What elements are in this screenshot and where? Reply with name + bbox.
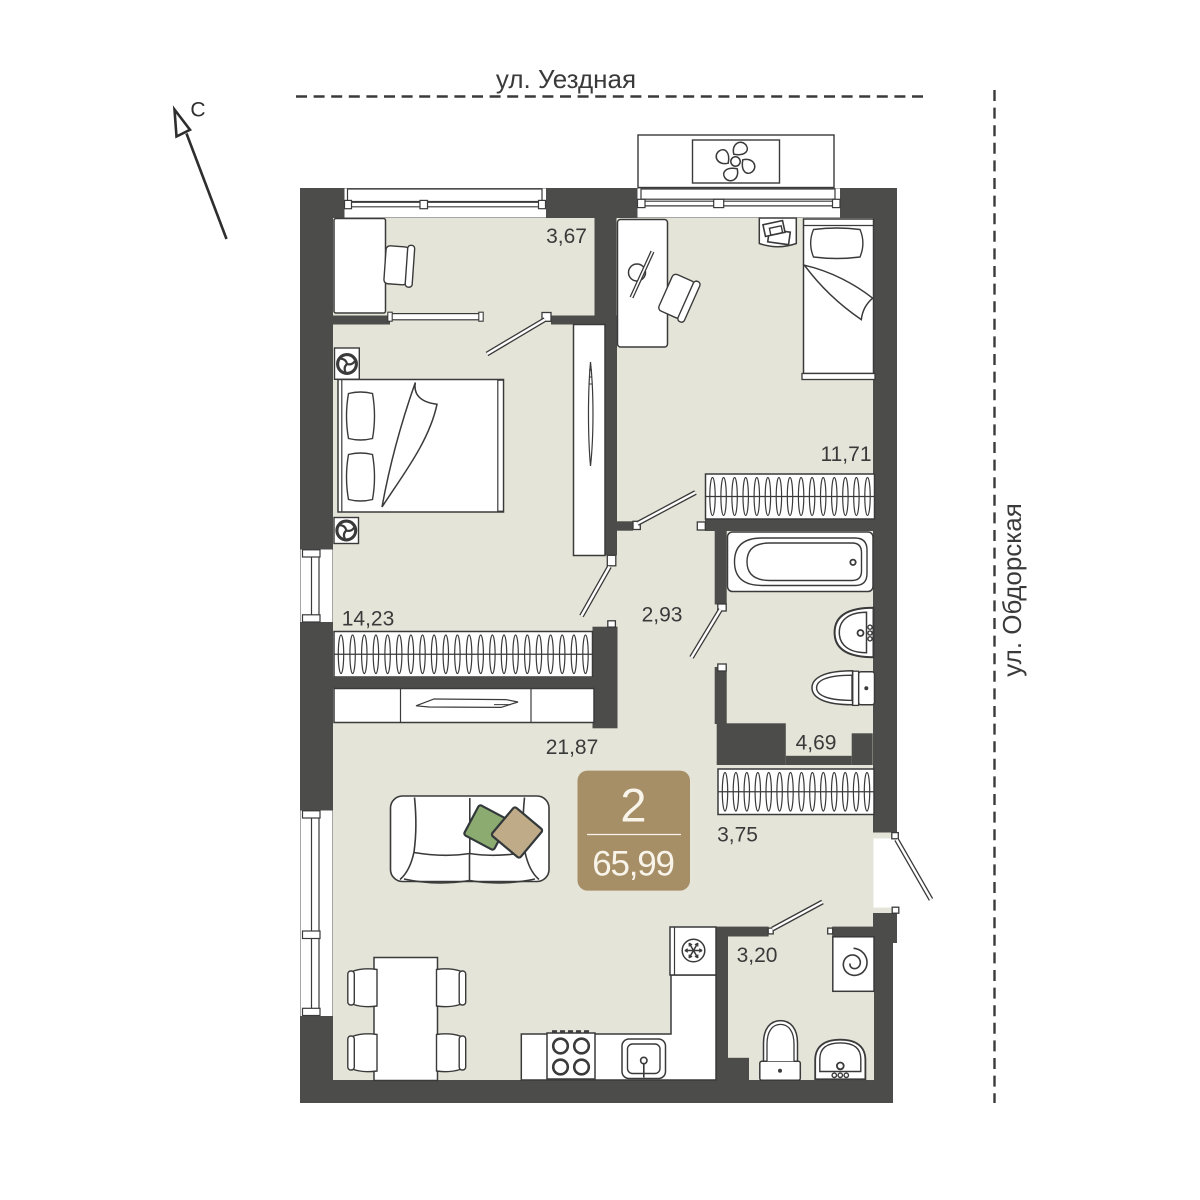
svg-text:4,69: 4,69	[796, 732, 837, 755]
svg-text:ул. Уездная: ул. Уездная	[496, 64, 636, 94]
svg-text:2: 2	[620, 779, 646, 832]
svg-text:3,67: 3,67	[546, 225, 587, 248]
svg-text:14,23: 14,23	[342, 608, 395, 631]
svg-text:2,93: 2,93	[642, 604, 683, 627]
svg-text:21,87: 21,87	[546, 736, 599, 759]
svg-text:65,99: 65,99	[592, 845, 674, 884]
svg-text:3,75: 3,75	[717, 824, 758, 847]
svg-text:ул. Обдорская: ул. Обдорская	[997, 503, 1027, 677]
svg-text:С: С	[190, 99, 205, 122]
svg-text:11,71: 11,71	[821, 443, 872, 466]
svg-text:3,20: 3,20	[737, 944, 778, 967]
